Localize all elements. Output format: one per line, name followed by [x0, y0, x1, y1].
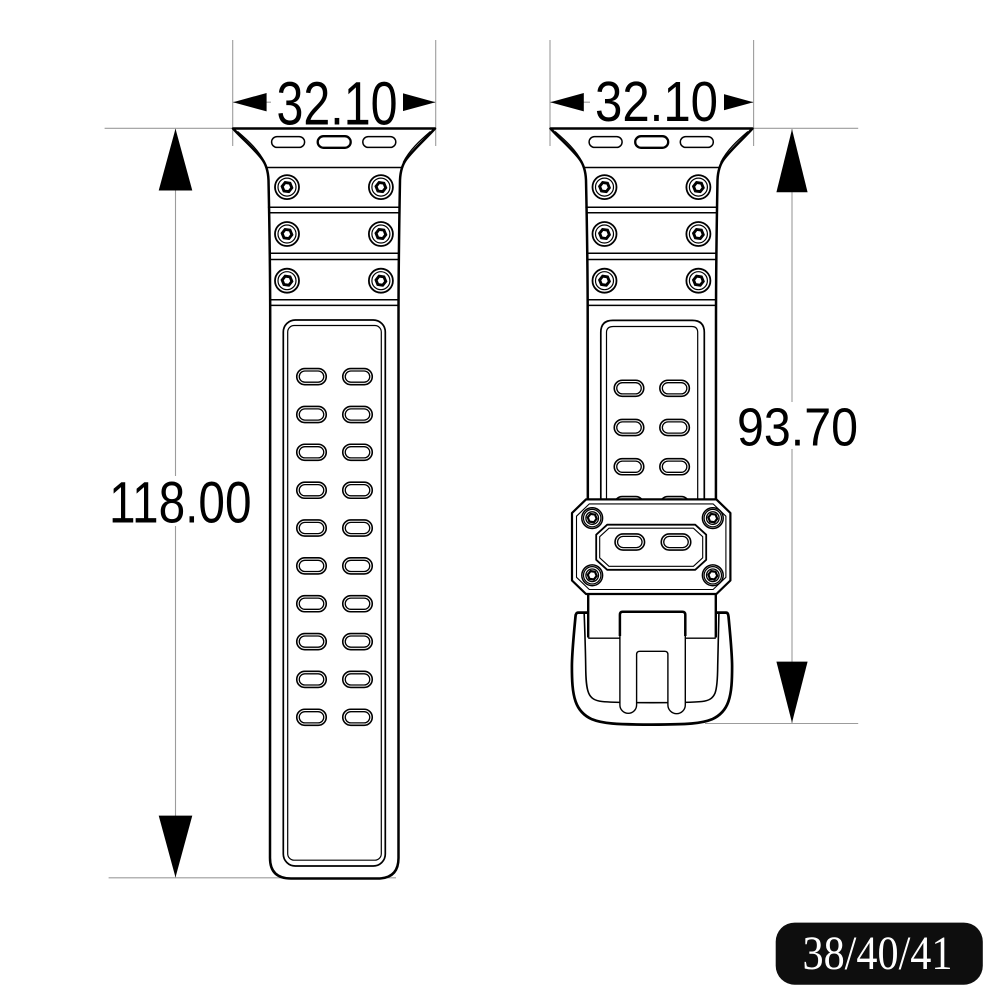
svg-text:118.00: 118.00 — [109, 471, 252, 536]
svg-text:32.10: 32.10 — [595, 70, 718, 133]
svg-text:38/40/41: 38/40/41 — [803, 928, 953, 980]
svg-text:93.70: 93.70 — [737, 398, 858, 457]
